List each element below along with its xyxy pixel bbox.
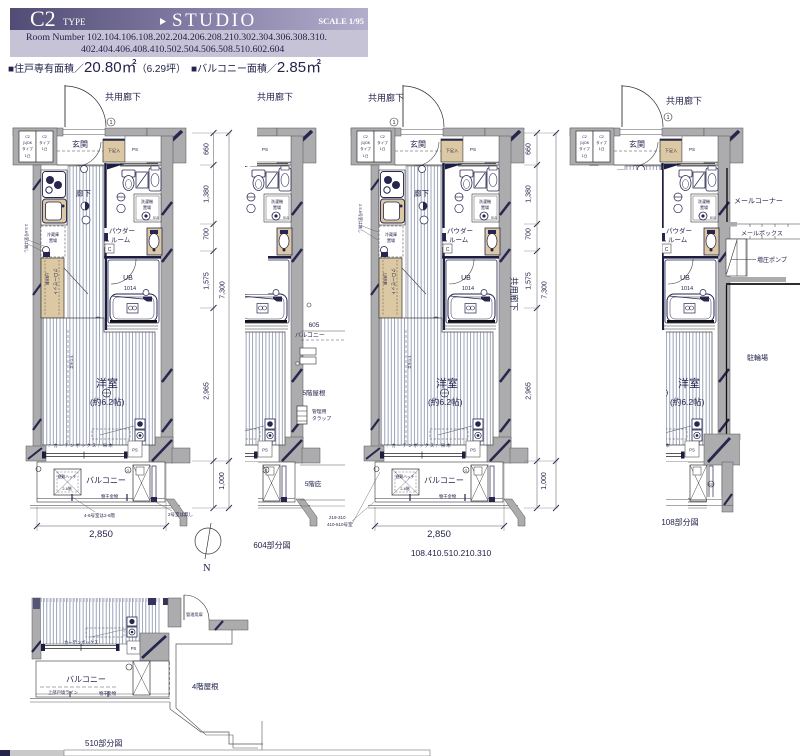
svg-text:(約6.2帖): (約6.2帖) — [428, 397, 463, 407]
svg-text:STUDIO: STUDIO — [172, 10, 257, 31]
svg-text:605: 605 — [309, 322, 320, 329]
svg-text:駐輪場: 駐輪場 — [747, 353, 768, 362]
svg-text:402.404.406.408.410.502.504.50: 402.404.406.408.410.502.504.506.508.510.… — [81, 44, 284, 55]
svg-text:G: G — [710, 483, 713, 487]
svg-text:G: G — [465, 469, 468, 473]
svg-text:洋室: 洋室 — [678, 376, 700, 390]
svg-text:1: 1 — [392, 120, 395, 126]
svg-text:増圧ポンプ: 増圧ポンプ — [757, 256, 787, 264]
svg-text:共用廊下: 共用廊下 — [257, 91, 293, 102]
svg-text:5階庇: 5階庇 — [305, 479, 322, 488]
svg-text:管理用: 管理用 — [312, 408, 327, 415]
svg-text:5階屋根: 5階屋根 — [302, 388, 326, 397]
svg-text:(約6.2帖): (約6.2帖) — [90, 397, 125, 407]
svg-text:洋室: 洋室 — [96, 376, 118, 390]
svg-text:洋室: 洋室 — [436, 376, 458, 390]
svg-text:SCALE 1/95: SCALE 1/95 — [318, 16, 364, 26]
svg-text:タラップ: タラップ — [312, 415, 331, 422]
svg-text:共用廊下: 共用廊下 — [509, 277, 519, 312]
svg-text:N: N — [203, 563, 211, 574]
svg-text:Room Number 102.104.106.108.: Room Number 102.104.106.108.202.204.206.… — [26, 32, 327, 43]
svg-text:1: 1 — [666, 115, 669, 121]
svg-text:2.5.8号室は無し: 2.5.8号室は無し — [358, 204, 364, 233]
svg-text:108.410.510.210.310: 108.410.510.210.310 — [411, 548, 492, 558]
svg-text:PS: PS — [131, 646, 137, 651]
svg-text:510部分図: 510部分図 — [85, 738, 122, 748]
svg-text:管理用扉: 管理用扉 — [186, 611, 203, 618]
svg-text:バルコニー: バルコニー — [295, 332, 325, 339]
svg-text:上部戸境ライン: 上部戸境ライン — [48, 689, 78, 696]
svg-text:共用廊下: 共用廊下 — [105, 91, 141, 102]
svg-text:共用廊下: 共用廊下 — [368, 92, 404, 103]
svg-text:1: 1 — [109, 120, 112, 126]
svg-text:2号室は無し: 2号室は無し — [168, 511, 194, 518]
svg-text:410-510号室: 410-510号室 — [327, 521, 353, 528]
svg-text:G: G — [127, 469, 130, 473]
svg-text:4階屋根: 4階屋根 — [192, 681, 219, 691]
svg-text:604部分図: 604部分図 — [253, 540, 290, 550]
svg-text:共用廊下: 共用廊下 — [666, 95, 702, 106]
svg-text:メールコーナー: メールコーナー — [734, 197, 783, 205]
svg-text:TYPE: TYPE — [63, 17, 86, 27]
svg-text:(約6.2帖): (約6.2帖) — [670, 397, 705, 407]
svg-text:バルコニー: バルコニー — [66, 675, 106, 684]
svg-text:219-310: 219-310 — [329, 515, 346, 520]
svg-text:4-6号室は2-6階: 4-6号室は2-6階 — [84, 512, 116, 519]
svg-text:C2: C2 — [30, 6, 56, 31]
svg-text:108部分図: 108部分図 — [661, 517, 698, 527]
svg-text:2.5.8号室は無し: 2.5.8号室は無し — [24, 224, 30, 253]
svg-text:G: G — [265, 469, 268, 473]
